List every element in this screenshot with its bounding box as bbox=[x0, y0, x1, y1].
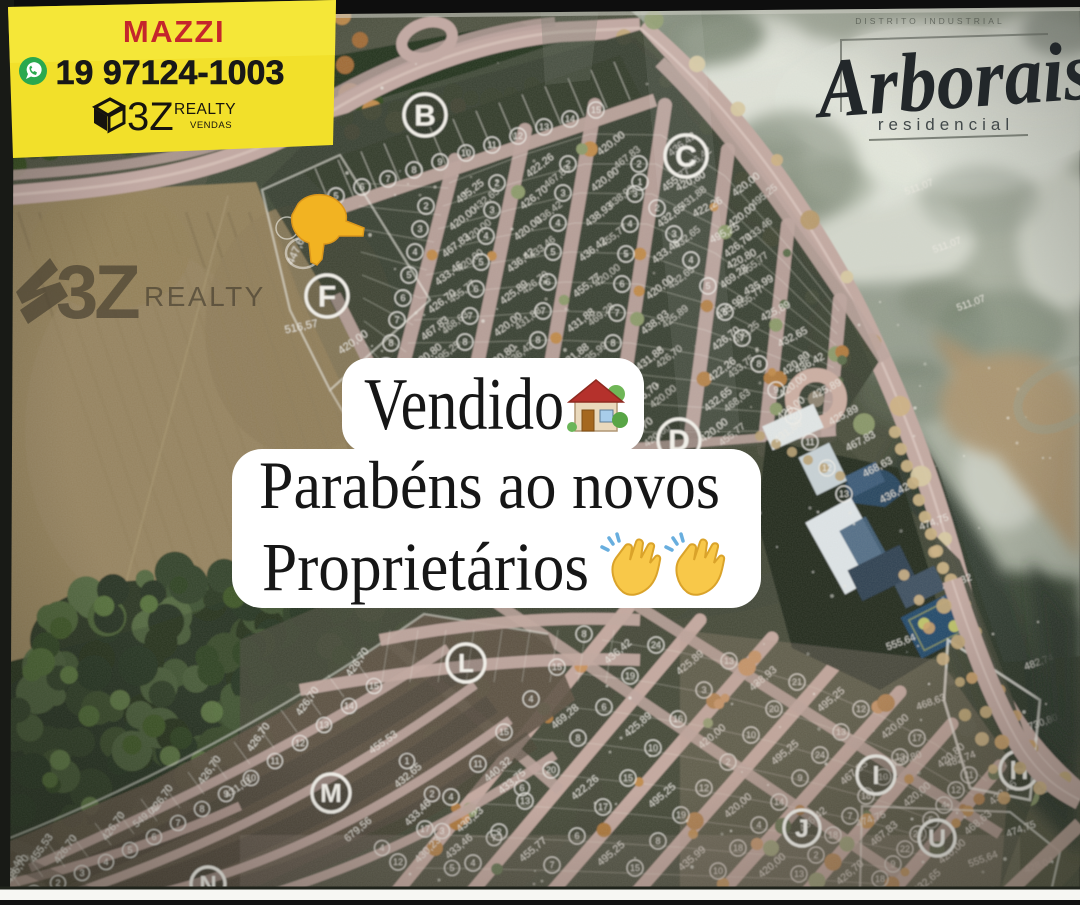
svg-text:19 97124-1003: 19 97124-1003 bbox=[56, 54, 285, 92]
svg-text:DISTRITO INDUSTRIAL: DISTRITO INDUSTRIAL bbox=[855, 16, 1004, 26]
svg-text:REALTY: REALTY bbox=[144, 281, 266, 312]
svg-text:REALTY: REALTY bbox=[174, 101, 236, 118]
svg-text:Vendido: Vendido bbox=[364, 364, 564, 446]
svg-text:3Z: 3Z bbox=[56, 250, 139, 335]
svg-text:Proprietários: Proprietários bbox=[262, 529, 589, 605]
svg-text:MAZZI: MAZZI bbox=[123, 14, 225, 49]
svg-text:3Z: 3Z bbox=[127, 95, 174, 139]
svg-text:residencial: residencial bbox=[878, 115, 1014, 134]
svg-text:VENDAS: VENDAS bbox=[190, 120, 232, 131]
svg-text:Parabéns ao novos: Parabéns ao novos bbox=[259, 447, 720, 523]
